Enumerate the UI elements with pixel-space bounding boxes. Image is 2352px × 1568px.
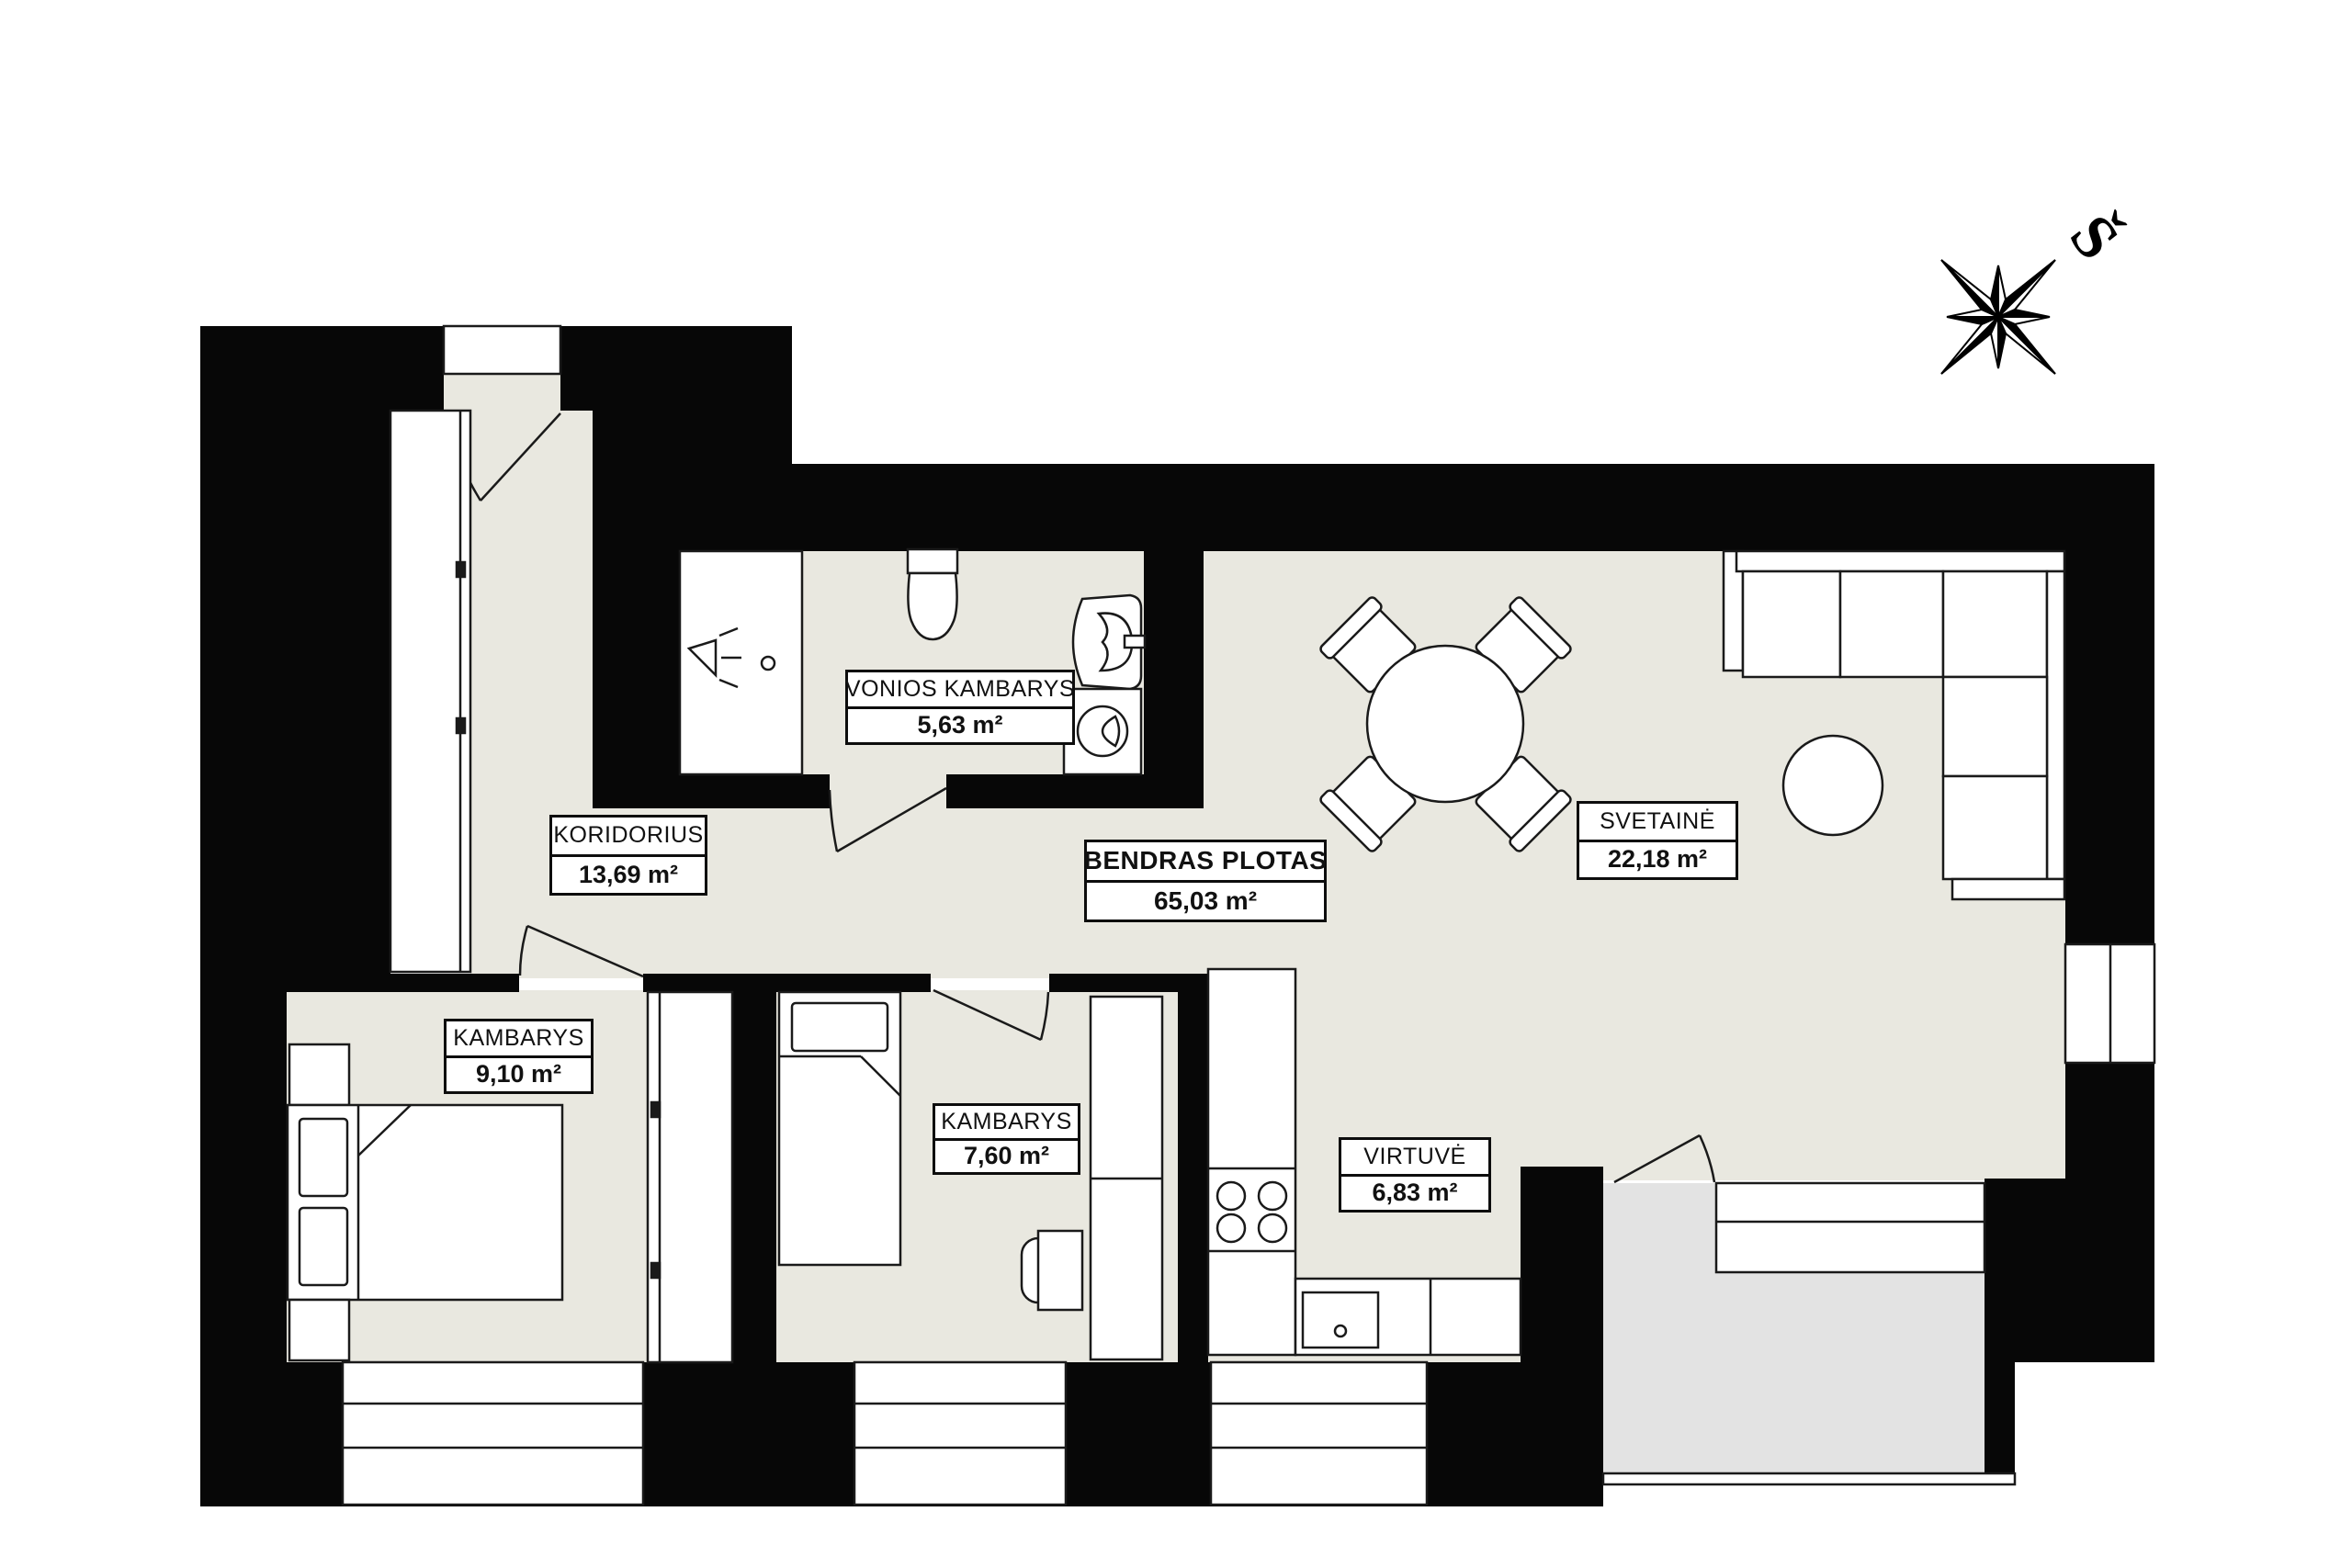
window-right-wall (2065, 944, 2154, 1063)
room-label-svetaine: SVETAINĖ 22,18 m² (1577, 801, 1738, 880)
entrance-threshold (444, 326, 560, 374)
coffee-table-icon (1783, 736, 1883, 835)
room-label-vonios-kambarys: VONIOS KAMBARYS 5,63 m² (845, 670, 1075, 745)
washing-machine-icon (1064, 689, 1141, 774)
room-area: 9,10 m² (447, 1058, 591, 1092)
room-area: 13,69 m² (552, 857, 705, 894)
balcony-window (1716, 1183, 1984, 1272)
nightstand-icon (289, 1044, 349, 1105)
room-name: VONIOS KAMBARYS (848, 672, 1072, 709)
room-label-koridorius: KORIDORIUS 13,69 m² (549, 815, 707, 896)
room-name: KORIDORIUS (552, 818, 705, 857)
room-area: 22,18 m² (1579, 842, 1736, 878)
room-label-virtuve: VIRTUVĖ 6,83 m² (1339, 1137, 1491, 1213)
bedroom-2-wardrobe-icon (1091, 997, 1162, 1359)
toilet-icon (908, 549, 957, 639)
room-label-kambarys-1: KAMBARYS 9,10 m² (444, 1019, 594, 1094)
corridor-wardrobe-icon (390, 411, 470, 972)
room-name: SVETAINĖ (1579, 804, 1736, 842)
window-kitchen (1211, 1362, 1427, 1505)
shower-icon (680, 551, 802, 774)
room-area: 6,83 m² (1341, 1177, 1488, 1211)
nightstand-icon (289, 1300, 349, 1360)
floor-plan: Š VONIOS KAMBARYS 5,63 m² KORIDORIUS 13,… (0, 0, 2352, 1568)
room-name: VIRTUVĖ (1341, 1140, 1488, 1177)
desk-icon (1038, 1231, 1082, 1310)
room-area: 65,03 m² (1087, 883, 1324, 920)
compass-north-label: Š (2057, 202, 2133, 273)
single-bed-icon (779, 992, 900, 1265)
window-bedroom-2 (854, 1362, 1066, 1505)
room-area: 5,63 m² (848, 709, 1072, 743)
room-label-kambarys-2: KAMBARYS 7,60 m² (933, 1103, 1080, 1175)
room-area: 7,60 m² (935, 1141, 1078, 1173)
room-name: KAMBARYS (447, 1021, 591, 1058)
compass-rose-icon: Š (1941, 202, 2133, 374)
kitchen-sink-icon (1303, 1292, 1378, 1348)
balcony-railing (1603, 1473, 2015, 1484)
double-bed-icon (288, 1105, 562, 1300)
room-label-bendras-plotas: BENDRAS PLOTAS 65,03 m² (1084, 840, 1327, 922)
room-name: BENDRAS PLOTAS (1087, 842, 1324, 883)
dining-table-icon (1367, 646, 1523, 802)
window-bedroom-1 (343, 1362, 643, 1505)
sink-icon (1073, 595, 1145, 689)
room-name: KAMBARYS (935, 1106, 1078, 1141)
floor-plan-drawing: Š (0, 0, 2352, 1568)
bedroom-1-wardrobe-icon (648, 992, 732, 1362)
